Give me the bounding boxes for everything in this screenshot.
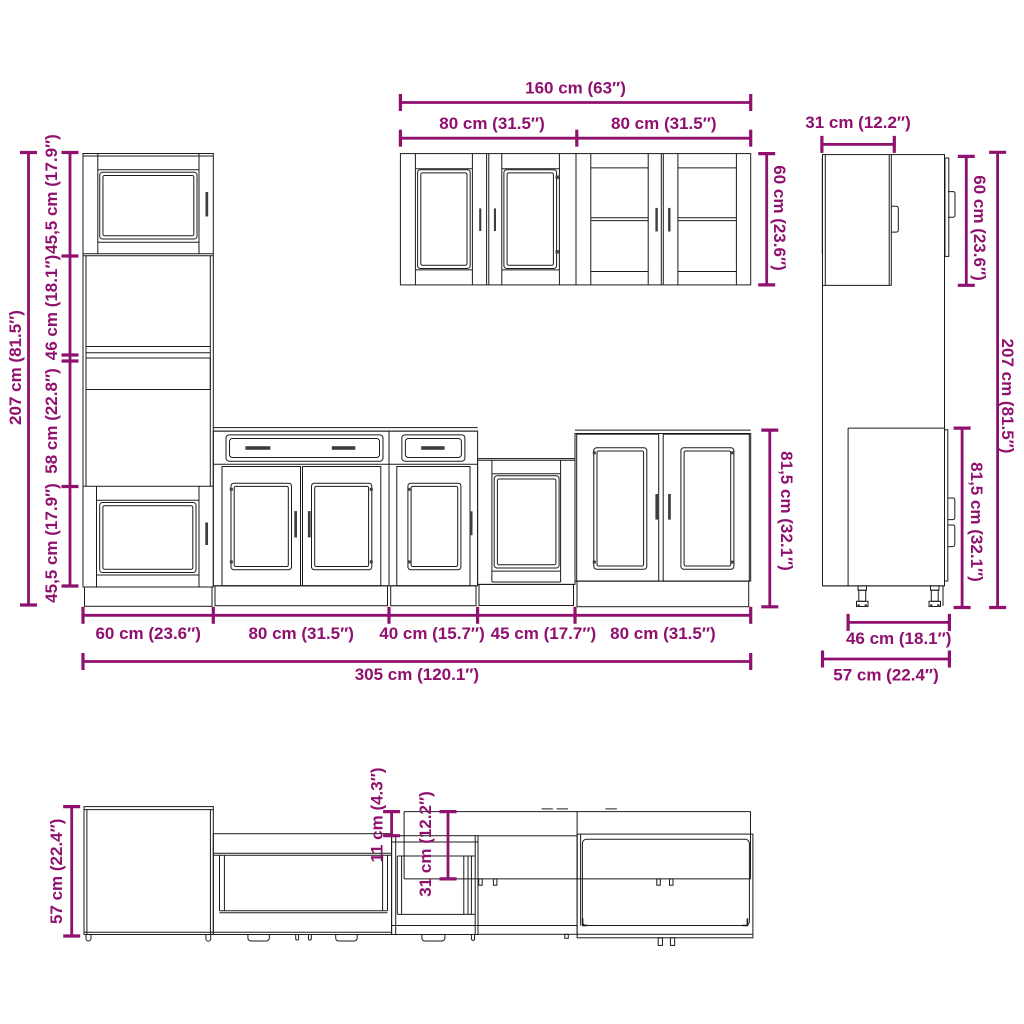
svg-text:45 cm (17.7″): 45 cm (17.7″) bbox=[491, 624, 596, 643]
svg-text:81,5 cm (32.1″): 81,5 cm (32.1″) bbox=[777, 451, 796, 571]
svg-text:57 cm (22.4″): 57 cm (22.4″) bbox=[833, 666, 938, 685]
svg-text:60 cm (23.6″): 60 cm (23.6″) bbox=[770, 165, 789, 270]
svg-text:60 cm (23.6″): 60 cm (23.6″) bbox=[95, 624, 200, 643]
svg-text:31 cm (12.2″): 31 cm (12.2″) bbox=[805, 113, 910, 132]
svg-text:57 cm (22.4″): 57 cm (22.4″) bbox=[47, 819, 66, 924]
svg-text:45,5 cm (17.9″): 45,5 cm (17.9″) bbox=[42, 483, 61, 603]
svg-text:46 cm (18.1″): 46 cm (18.1″) bbox=[42, 255, 61, 360]
svg-text:207 cm (81.5″): 207 cm (81.5″) bbox=[6, 310, 25, 425]
svg-text:60 cm (23.6″): 60 cm (23.6″) bbox=[970, 175, 989, 280]
svg-text:46 cm (18.1″): 46 cm (18.1″) bbox=[846, 629, 951, 648]
svg-text:160 cm (63″): 160 cm (63″) bbox=[525, 79, 626, 98]
svg-text:305 cm (120.1″): 305 cm (120.1″) bbox=[355, 665, 479, 684]
svg-text:207 cm (81.5″): 207 cm (81.5″) bbox=[998, 339, 1017, 454]
svg-text:58 cm (22.8″): 58 cm (22.8″) bbox=[42, 368, 61, 473]
svg-text:11 cm (4.3″): 11 cm (4.3″) bbox=[368, 767, 387, 862]
svg-text:81,5 cm (32.1″): 81,5 cm (32.1″) bbox=[967, 462, 986, 582]
svg-text:80 cm (31.5″): 80 cm (31.5″) bbox=[610, 624, 715, 643]
svg-text:80 cm (31.5″): 80 cm (31.5″) bbox=[248, 624, 353, 643]
svg-text:31 cm (12.2″): 31 cm (12.2″) bbox=[416, 791, 435, 896]
svg-text:45,5 cm (17.9″): 45,5 cm (17.9″) bbox=[42, 134, 61, 254]
svg-text:80 cm (31.5″): 80 cm (31.5″) bbox=[439, 114, 544, 133]
svg-text:80 cm (31.5″): 80 cm (31.5″) bbox=[611, 114, 716, 133]
svg-text:40 cm (15.7″): 40 cm (15.7″) bbox=[379, 624, 484, 643]
